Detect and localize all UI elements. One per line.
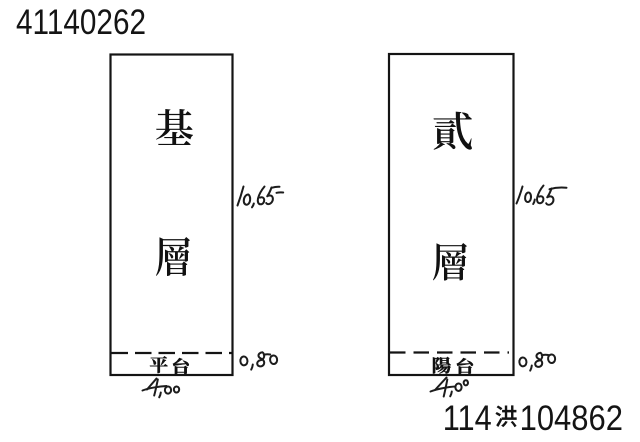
svg-text:114: 114 [443, 399, 492, 438]
svg-text:104862: 104862 [520, 399, 623, 438]
svg-text:41140262: 41140262 [16, 3, 146, 42]
